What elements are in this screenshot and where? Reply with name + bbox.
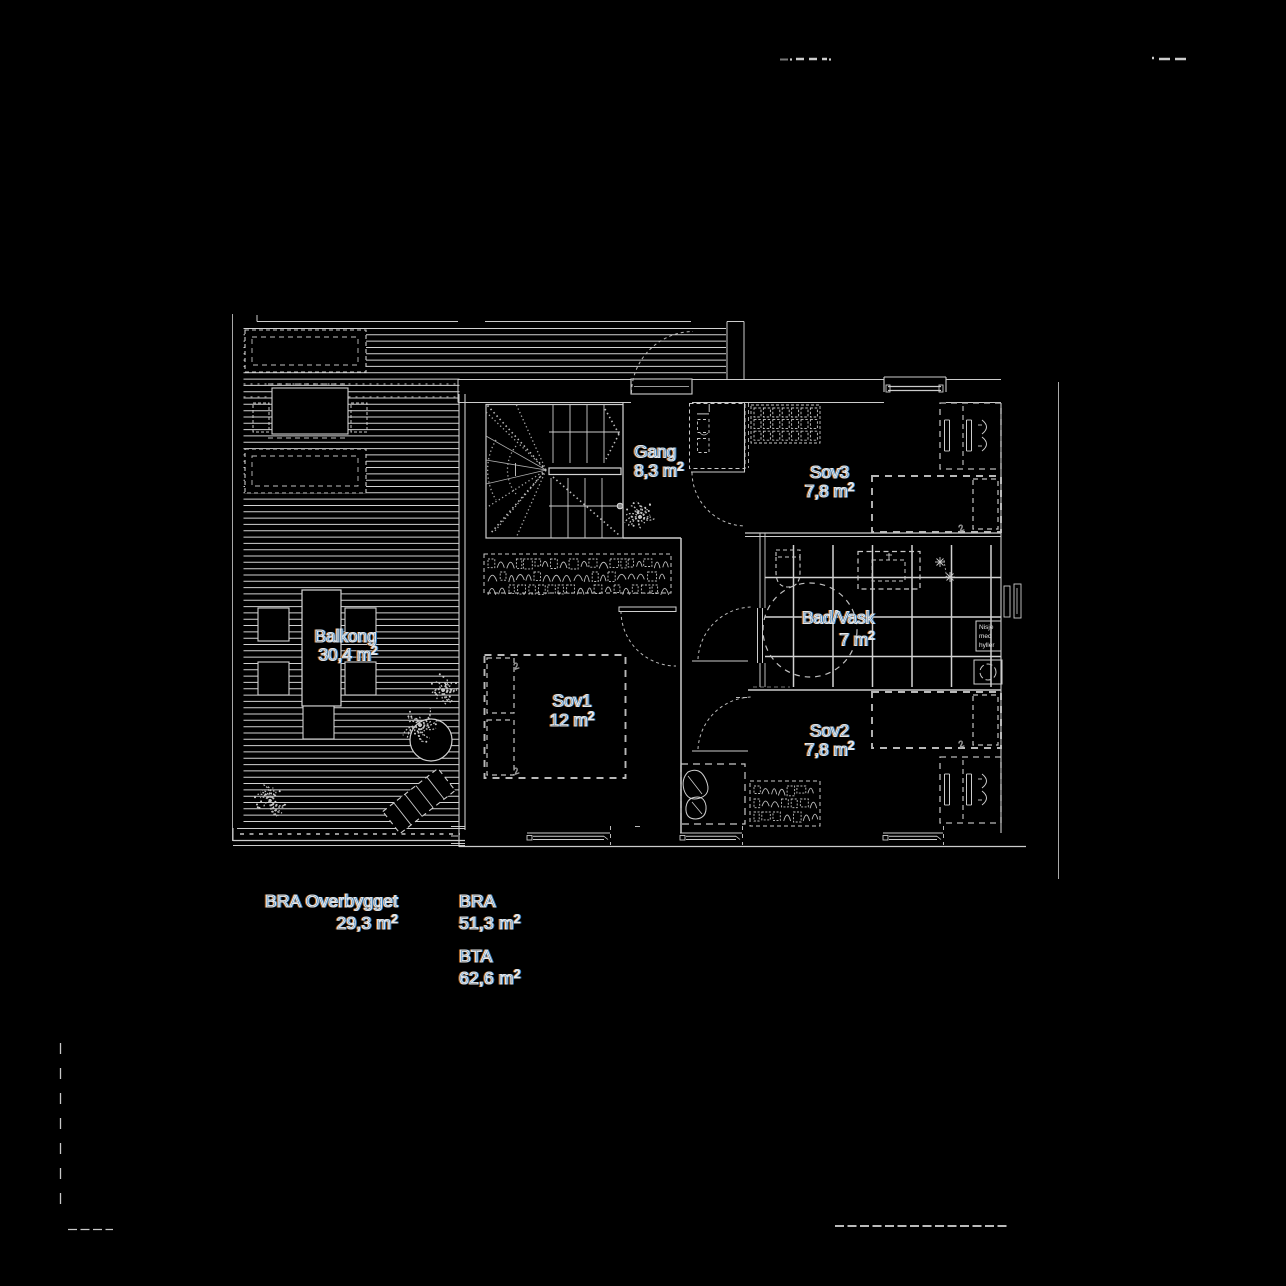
svg-text:29,3 m2: 29,3 m2: [336, 912, 398, 933]
svg-text:Nisje: Nisje: [979, 624, 994, 631]
svg-text:BRA Overbygget: BRA Overbygget: [265, 891, 398, 911]
svg-text:Sov3: Sov3: [810, 462, 849, 482]
svg-text:Balkong: Balkong: [314, 626, 376, 646]
svg-text:BRA: BRA: [459, 891, 496, 911]
svg-text:hyller: hyller: [979, 642, 995, 649]
svg-text:7,8 m2: 7,8 m2: [805, 739, 855, 760]
svg-text:Bad/Vask: Bad/Vask: [802, 608, 875, 628]
svg-text:Sov1: Sov1: [552, 691, 591, 711]
svg-text:62,6 m2: 62,6 m2: [459, 967, 521, 988]
svg-text:8,3 m2: 8,3 m2: [634, 460, 684, 481]
svg-text:Gang: Gang: [634, 442, 676, 462]
svg-text:51,3 m2: 51,3 m2: [459, 912, 521, 933]
svg-text:Sov2: Sov2: [810, 721, 849, 741]
svg-text:7,8 m2: 7,8 m2: [805, 480, 855, 501]
svg-text:med: med: [979, 633, 992, 640]
svg-text:30,4 m2: 30,4 m2: [318, 644, 378, 665]
svg-text:BTA: BTA: [459, 946, 492, 966]
